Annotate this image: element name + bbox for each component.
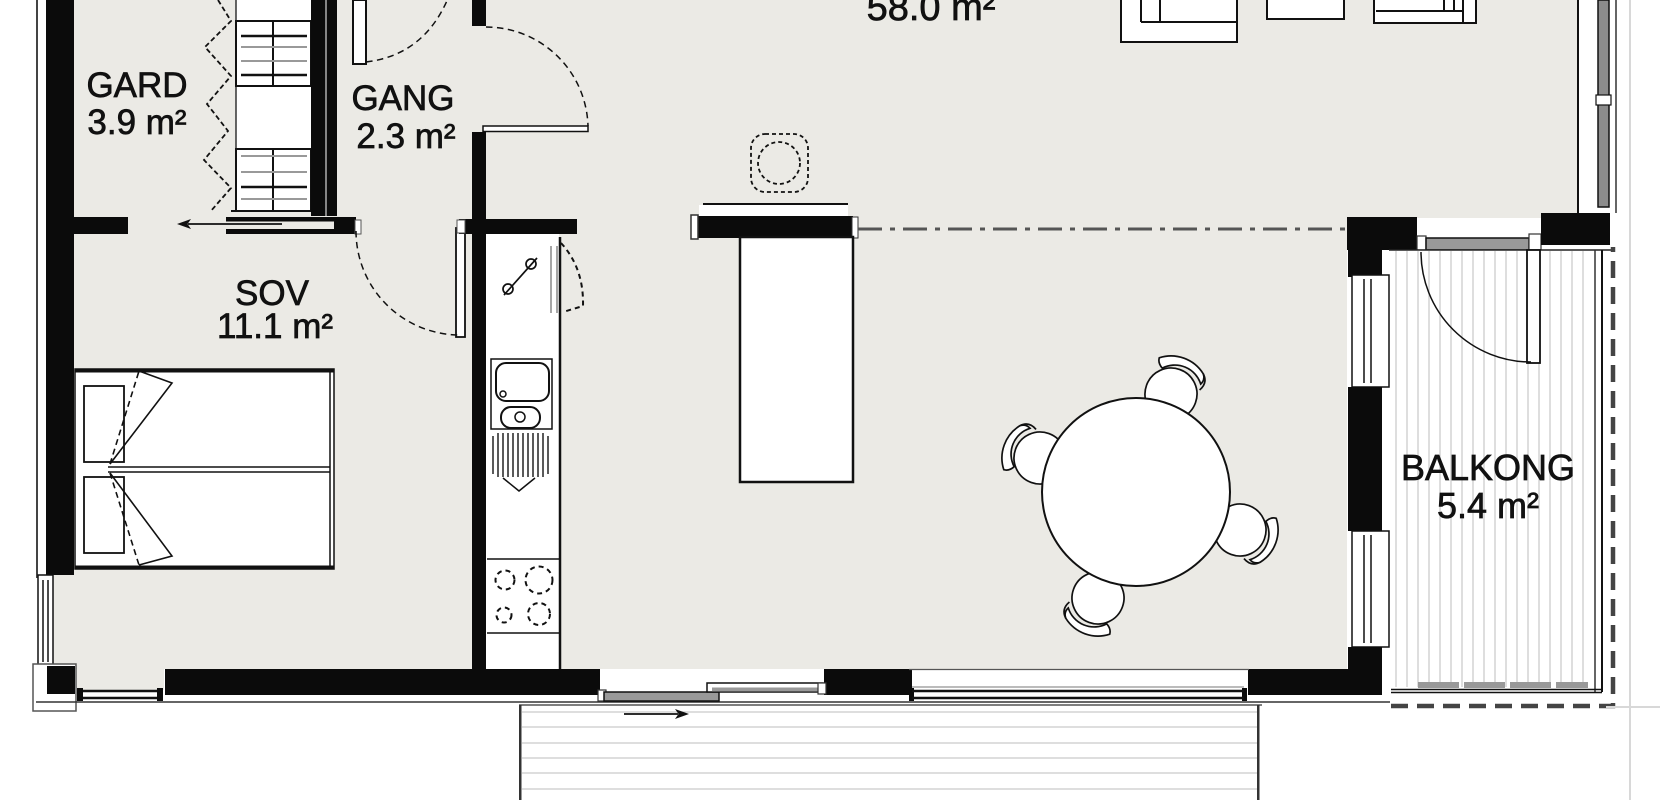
- svg-text:58.0 m²: 58.0 m²: [867, 0, 996, 29]
- svg-text:11.1 m²: 11.1 m²: [217, 307, 333, 346]
- svg-text:5.4 m²: 5.4 m²: [1437, 485, 1539, 526]
- svg-text:3.9 m²: 3.9 m²: [87, 103, 186, 142]
- svg-text:2.3 m²: 2.3 m²: [356, 117, 455, 156]
- svg-text:BALKONG: BALKONG: [1401, 447, 1575, 488]
- svg-text:GARD: GARD: [86, 66, 187, 105]
- svg-text:GANG: GANG: [351, 79, 454, 118]
